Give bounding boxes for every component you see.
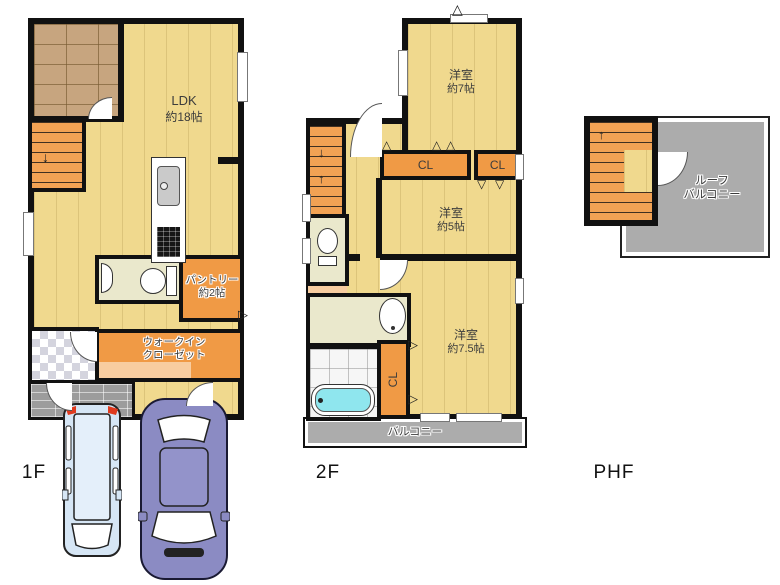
f2-cl2-label: CL [474, 150, 521, 180]
phf-stairs-up-arrow-icon: ↑ [598, 128, 605, 141]
f2-vanity-faucet-icon [391, 326, 395, 330]
f1-stairs [28, 118, 86, 192]
f1-wic-label: ウォークイン クローゼット [118, 334, 230, 364]
f2-room75-label: 洋室 約7.5帖 [428, 326, 504, 358]
f2-cl1-triangle-icon-c: △ [446, 139, 455, 151]
f2-window-left-2 [302, 238, 311, 264]
f2-window-right-2 [515, 278, 524, 304]
floorplan-canvas: ↓ ▷ LDK 約18帖 パントリー 約2帖 ウォークイン クローゼット 1F [0, 0, 780, 585]
f2-room7-door-arc [350, 103, 382, 157]
f1-stairs-down-arrow-icon: ↓ [42, 150, 49, 164]
f1-toilet-bowl [140, 268, 166, 294]
f2-roof-vent-triangle-icon: △ [452, 2, 463, 16]
f1-window-left [23, 212, 34, 256]
f2-toilet-tank [318, 256, 337, 266]
f2-cl2-triangle-icon-b: ▽ [495, 178, 504, 190]
f2-cl3-label: CL [377, 340, 410, 419]
f2-cl3-triangle-icon-b: ▷ [408, 392, 418, 405]
f1-window-right [237, 52, 248, 102]
f2-cl1-label: CL [380, 150, 471, 180]
f2-stairs [306, 122, 346, 218]
f2-room5-wall-left [376, 178, 382, 258]
f2-bathtub-faucet-icon [318, 398, 323, 403]
phf-roof-balcony-label: ルーフ バルコニー [660, 168, 764, 208]
f1-ldk-label: LDK 約18帖 [148, 92, 220, 126]
f2-cl1-triangle-icon-a: △ [382, 139, 391, 151]
f2-cl1-triangle-icon-b: △ [432, 139, 441, 151]
f2-bathtub-water [315, 388, 371, 412]
f2-floor-label: 2F [306, 462, 350, 484]
f1-toilet-tank [166, 266, 177, 296]
f2-stairs-up-arrow-icon: ↑ [318, 172, 325, 185]
f2-toilet-bowl [317, 228, 338, 254]
f1-wall-stub-right [218, 157, 244, 164]
f1-pantry-vent-triangle-icon: ▷ [238, 308, 248, 321]
kitchen-stove [157, 227, 180, 257]
f1-floor-label: 1F [12, 462, 56, 484]
f2-window-left-room7 [398, 50, 408, 96]
f2-stairs-down-arrow-icon: ↓ [318, 146, 325, 159]
f2-cl2-triangle-icon-a: ▽ [477, 178, 486, 190]
f2-window-left-1 [302, 194, 311, 222]
f1-pantry-label: パントリー 約2帖 [181, 272, 243, 302]
f2-room7-label: 洋室 約7帖 [426, 66, 496, 98]
car-sedan [138, 396, 230, 582]
f2-room5-label: 洋室 約5帖 [416, 204, 486, 236]
f2-cl3-triangle-icon-a: ▷ [408, 338, 418, 351]
phf-floor-label: PHF [586, 462, 642, 484]
car-van [62, 402, 122, 558]
kitchen-faucet-icon [160, 182, 168, 190]
f1-wic-floor-strip [99, 362, 191, 378]
phf-landing [624, 150, 652, 192]
f2-balcony-label: バルコニー [340, 421, 490, 445]
